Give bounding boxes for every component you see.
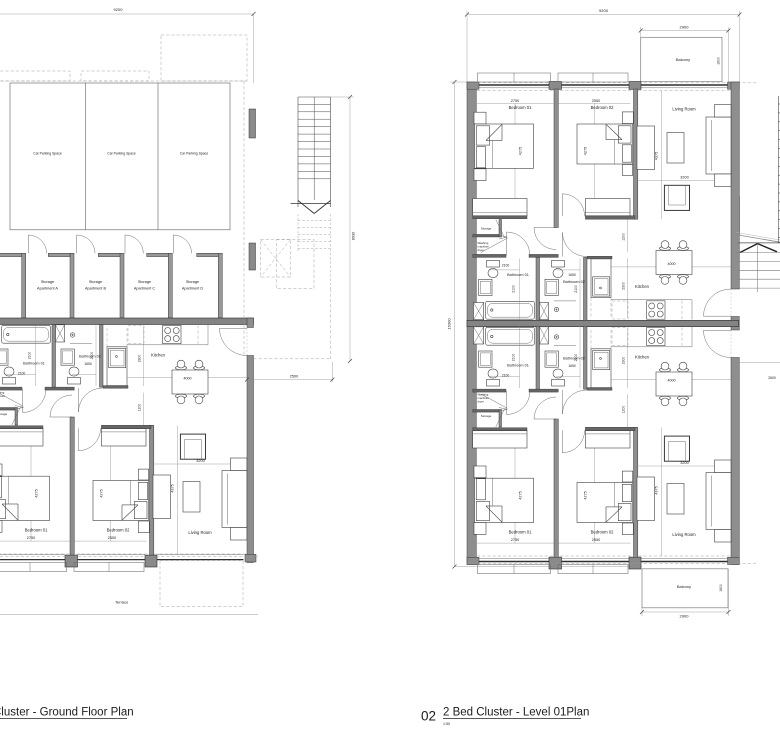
svg-text:2900: 2900 [680,25,690,30]
svg-text:1650: 1650 [568,364,576,368]
svg-text:2100: 2100 [28,352,32,360]
svg-text:Storage: Storage [0,412,8,416]
svg-text:4275: 4275 [100,489,104,497]
svg-text:Storage: Storage [481,227,492,231]
svg-text:4375: 4375 [655,486,659,494]
svg-text:2300: 2300 [622,282,626,290]
svg-text:2300: 2300 [622,357,626,365]
svg-text:Kitchen: Kitchen [635,355,650,360]
svg-text:1600: 1600 [719,584,723,592]
svg-text:Balcony: Balcony [676,57,690,62]
svg-text:4275: 4275 [584,147,588,155]
svg-text:Apartment D: Apartment D [182,287,204,291]
svg-text:9200: 9200 [599,8,609,13]
svg-text:dryer: dryer [478,399,484,403]
svg-text:2550: 2550 [592,538,600,542]
svg-text:Living Room: Living Room [672,107,696,112]
svg-text:4000: 4000 [668,262,676,266]
svg-text:8930: 8930 [352,232,356,240]
svg-text:4275: 4275 [584,491,588,499]
svg-text:2900: 2900 [680,614,690,619]
svg-text:Apartment B: Apartment B [85,287,107,291]
svg-text:1600: 1600 [717,57,721,65]
svg-text:Car Parking Space: Car Parking Space [180,152,209,156]
svg-text:16300: 16300 [447,318,452,330]
svg-text:3200: 3200 [196,459,204,463]
svg-text:2750: 2750 [27,536,35,540]
svg-text:Bedroom 02: Bedroom 02 [591,529,614,534]
svg-text:machine/: machine/ [0,394,5,398]
svg-text:Storage: Storage [89,280,102,284]
svg-text:3200: 3200 [680,461,688,465]
svg-text:1200: 1200 [622,233,626,241]
svg-text:4375: 4375 [171,484,175,492]
svg-text:Terrace: Terrace [115,600,129,605]
svg-text:4000: 4000 [184,377,192,381]
svg-text:2550: 2550 [108,536,116,540]
svg-text:Living Room: Living Room [672,532,696,537]
svg-text:Balcony: Balcony [677,584,691,589]
svg-text:Storage: Storage [481,414,492,418]
svg-text:4275: 4275 [519,491,523,499]
svg-text:Storage: Storage [186,280,199,284]
svg-text:Bathroom 01: Bathroom 01 [23,362,45,366]
svg-text:02: 02 [421,709,436,724]
svg-text:Storage: Storage [138,280,151,284]
svg-text:Cluster - Ground Floor Plan: Cluster - Ground Floor Plan [0,707,134,719]
svg-text:2100: 2100 [18,372,26,376]
svg-text:2 Bed Cluster - Level 01Plan: 2 Bed Cluster - Level 01Plan [443,707,589,719]
svg-text:1650: 1650 [84,362,92,366]
svg-text:2100: 2100 [502,374,510,378]
svg-text:Bedroom 01: Bedroom 01 [25,527,48,532]
svg-text:Kitchen: Kitchen [635,284,650,289]
svg-text:1200: 1200 [138,404,142,412]
svg-text:Car Parking Space: Car Parking Space [33,152,62,156]
svg-text:4275: 4275 [35,489,39,497]
svg-text:Bathroom 01: Bathroom 01 [507,364,529,368]
svg-text:2100: 2100 [512,285,516,293]
svg-text:3200: 3200 [680,176,688,180]
svg-text:4000: 4000 [668,379,676,383]
svg-text:1:50: 1:50 [443,722,450,726]
svg-text:1200: 1200 [622,406,626,414]
svg-text:Apartment A: Apartment A [37,287,58,291]
svg-text:1650: 1650 [568,273,576,277]
svg-text:2100: 2100 [502,263,510,267]
svg-text:Kitchen: Kitchen [151,353,166,358]
svg-text:2750: 2750 [511,99,519,103]
svg-text:2300: 2300 [138,355,142,363]
svg-text:2750: 2750 [511,538,519,542]
svg-text:2550: 2550 [592,99,600,103]
svg-text:Car Parking Space: Car Parking Space [107,152,136,156]
svg-text:Bedroom 02: Bedroom 02 [107,527,130,532]
svg-text:4275: 4275 [519,147,523,155]
svg-text:Bedroom 01: Bedroom 01 [509,529,532,534]
svg-text:4375: 4375 [655,152,659,160]
svg-text:Apartment C: Apartment C [134,287,156,291]
svg-text:2100: 2100 [574,285,578,293]
svg-text:2100: 2100 [574,354,578,362]
svg-text:9200: 9200 [114,7,124,12]
svg-text:2600: 2600 [768,376,776,380]
svg-text:Bathroom 02: Bathroom 02 [563,280,585,284]
svg-text:Living Room: Living Room [188,530,212,535]
svg-text:2100: 2100 [512,354,516,362]
svg-text:dryer: dryer [478,248,484,252]
svg-text:2500: 2500 [290,374,298,378]
svg-text:Bedroom 01: Bedroom 01 [509,105,532,110]
svg-text:Storage: Storage [41,280,54,284]
svg-text:Bathroom 01: Bathroom 01 [507,273,529,277]
svg-text:2100: 2100 [90,352,94,360]
svg-text:Bedroom 02: Bedroom 02 [591,105,614,110]
